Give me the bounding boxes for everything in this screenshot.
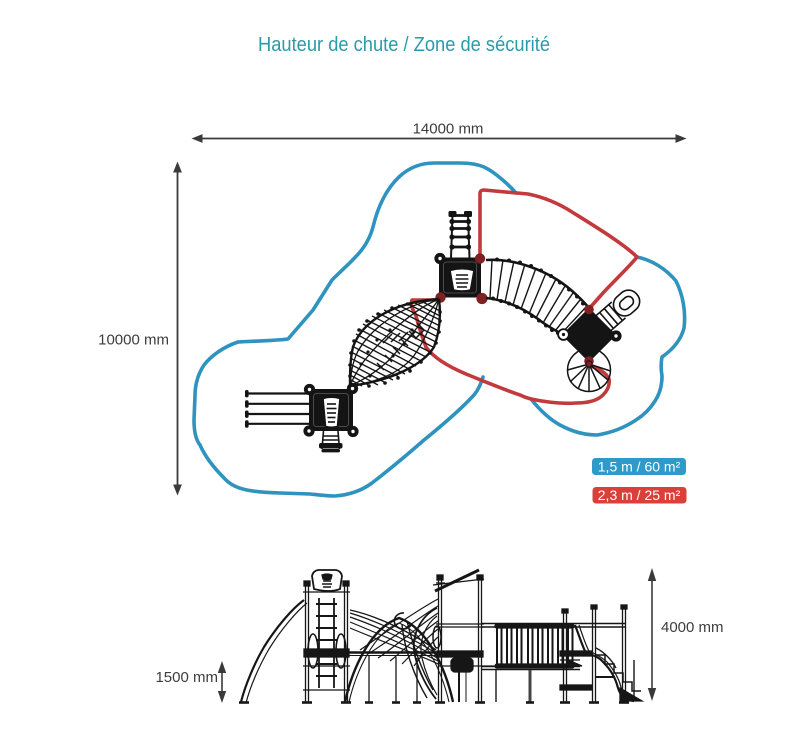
svg-text:1,5 m / 60 m²: 1,5 m / 60 m²: [598, 459, 681, 475]
svg-text:14000 mm: 14000 mm: [413, 121, 484, 138]
svg-text:Hauteur de chute / Zone de séc: Hauteur de chute / Zone de sécurité: [258, 33, 550, 56]
svg-text:10000 mm: 10000 mm: [98, 332, 169, 349]
svg-text:2,3 m / 25 m²: 2,3 m / 25 m²: [598, 487, 681, 503]
svg-text:1500 mm: 1500 mm: [155, 669, 218, 686]
svg-text:4000 mm: 4000 mm: [661, 619, 724, 636]
